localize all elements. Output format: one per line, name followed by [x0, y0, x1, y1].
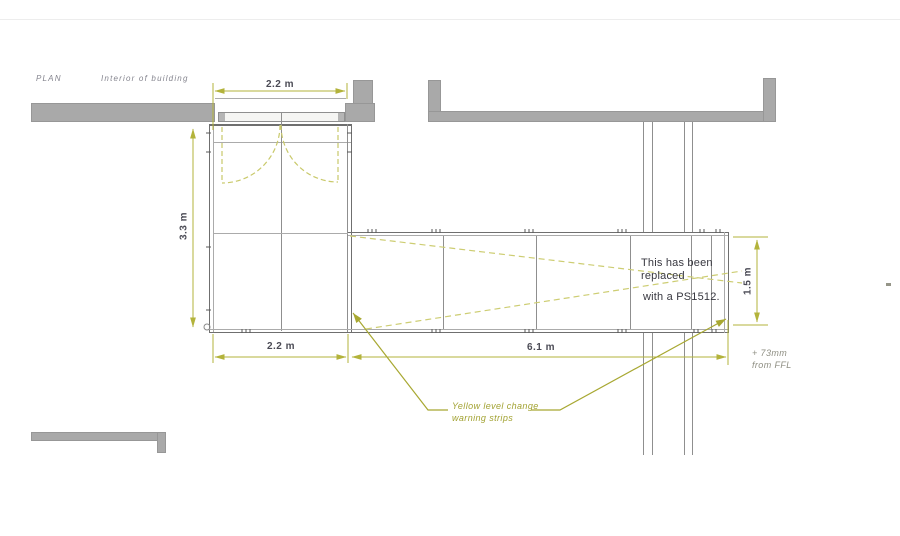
- leader-warning-left: [353, 313, 448, 410]
- walkway-top-edge-inner: [348, 235, 729, 236]
- wall-top-right-right-stub: [763, 78, 776, 122]
- wall-top-left: [31, 103, 215, 122]
- wall-bottom-left-band: [31, 432, 166, 441]
- walkway-divider-4: [691, 236, 692, 329]
- walkway-right-edge-outer: [728, 232, 729, 333]
- walkway-divider-3: [630, 236, 631, 329]
- pipe-line-4-lower: [692, 333, 693, 455]
- wall-door-right-pier: [345, 103, 375, 122]
- pipe-line-2-lower: [652, 333, 653, 455]
- walkway-bottom-edge-outer: [209, 332, 729, 333]
- walkway-divider-2: [536, 236, 537, 329]
- dim-label-walkway-length: 6.1 m: [501, 342, 581, 353]
- walkway-top-edge-outer: [348, 232, 729, 233]
- plan-title: PLAN: [36, 74, 62, 83]
- pipe-line-1-upper: [643, 122, 644, 232]
- plan-drawing-canvas: PLAN Interior of building: [0, 0, 900, 536]
- interior-of-building-label: Interior of building: [101, 74, 189, 83]
- vestibule-center-line: [281, 121, 282, 331]
- door-sill-center-mullion: [281, 113, 282, 121]
- door-head-line: [215, 98, 346, 99]
- walkway-divider-5: [711, 236, 712, 329]
- leader-warning-left-arrowhead: [353, 313, 362, 323]
- door-sill-left-block: [219, 113, 225, 121]
- page-top-rule: [0, 19, 900, 20]
- dim-label-walkway-width: 1.5 m: [743, 251, 754, 311]
- pipe-line-3-lower: [684, 333, 685, 455]
- replacement-note-line1: This has been: [641, 257, 713, 269]
- pipe-line-4-upper: [692, 122, 693, 232]
- vestibule-right-edge-outer: [351, 124, 352, 332]
- vestibule-level-line: [213, 233, 348, 234]
- dim-label-vestibule-depth: 3.3 m: [179, 196, 190, 256]
- door-sill-right-block: [338, 113, 344, 121]
- dim-label-vestibule-width: 2.2 m: [241, 341, 321, 352]
- walkway-divider-1: [443, 236, 444, 329]
- door-swing-arc-left: [222, 125, 280, 183]
- ffl-note-line1: + 73mm: [752, 347, 787, 359]
- wall-top-right-band: [428, 111, 776, 122]
- warning-note-line2: warning strips: [452, 412, 513, 424]
- door-swing-arc-right: [281, 125, 338, 182]
- stray-mark: [886, 283, 891, 286]
- pipe-line-1-lower: [643, 333, 644, 455]
- vestibule-right-edge-inner: [347, 124, 348, 332]
- vestibule-mat-line: [213, 142, 351, 143]
- vestibule-left-edge-inner: [213, 124, 214, 332]
- ffl-note-line2: from FFL: [752, 359, 792, 371]
- replacement-note-line3: with a PS1512.: [643, 291, 720, 303]
- vestibule-left-edge-outer: [209, 124, 210, 332]
- walkway-right-edge-inner: [724, 232, 725, 333]
- wall-door-right-pier-stub: [353, 80, 373, 104]
- walkway-bottom-edge-inner: [209, 329, 729, 330]
- pipe-line-2-upper: [652, 122, 653, 232]
- warning-note-line1: Yellow level change: [452, 400, 539, 412]
- replacement-note-line2: replaced: [641, 270, 685, 282]
- wall-bottom-left-stub: [157, 432, 166, 453]
- dim-label-door-width: 2.2 m: [240, 79, 320, 90]
- pipe-line-3-upper: [684, 122, 685, 232]
